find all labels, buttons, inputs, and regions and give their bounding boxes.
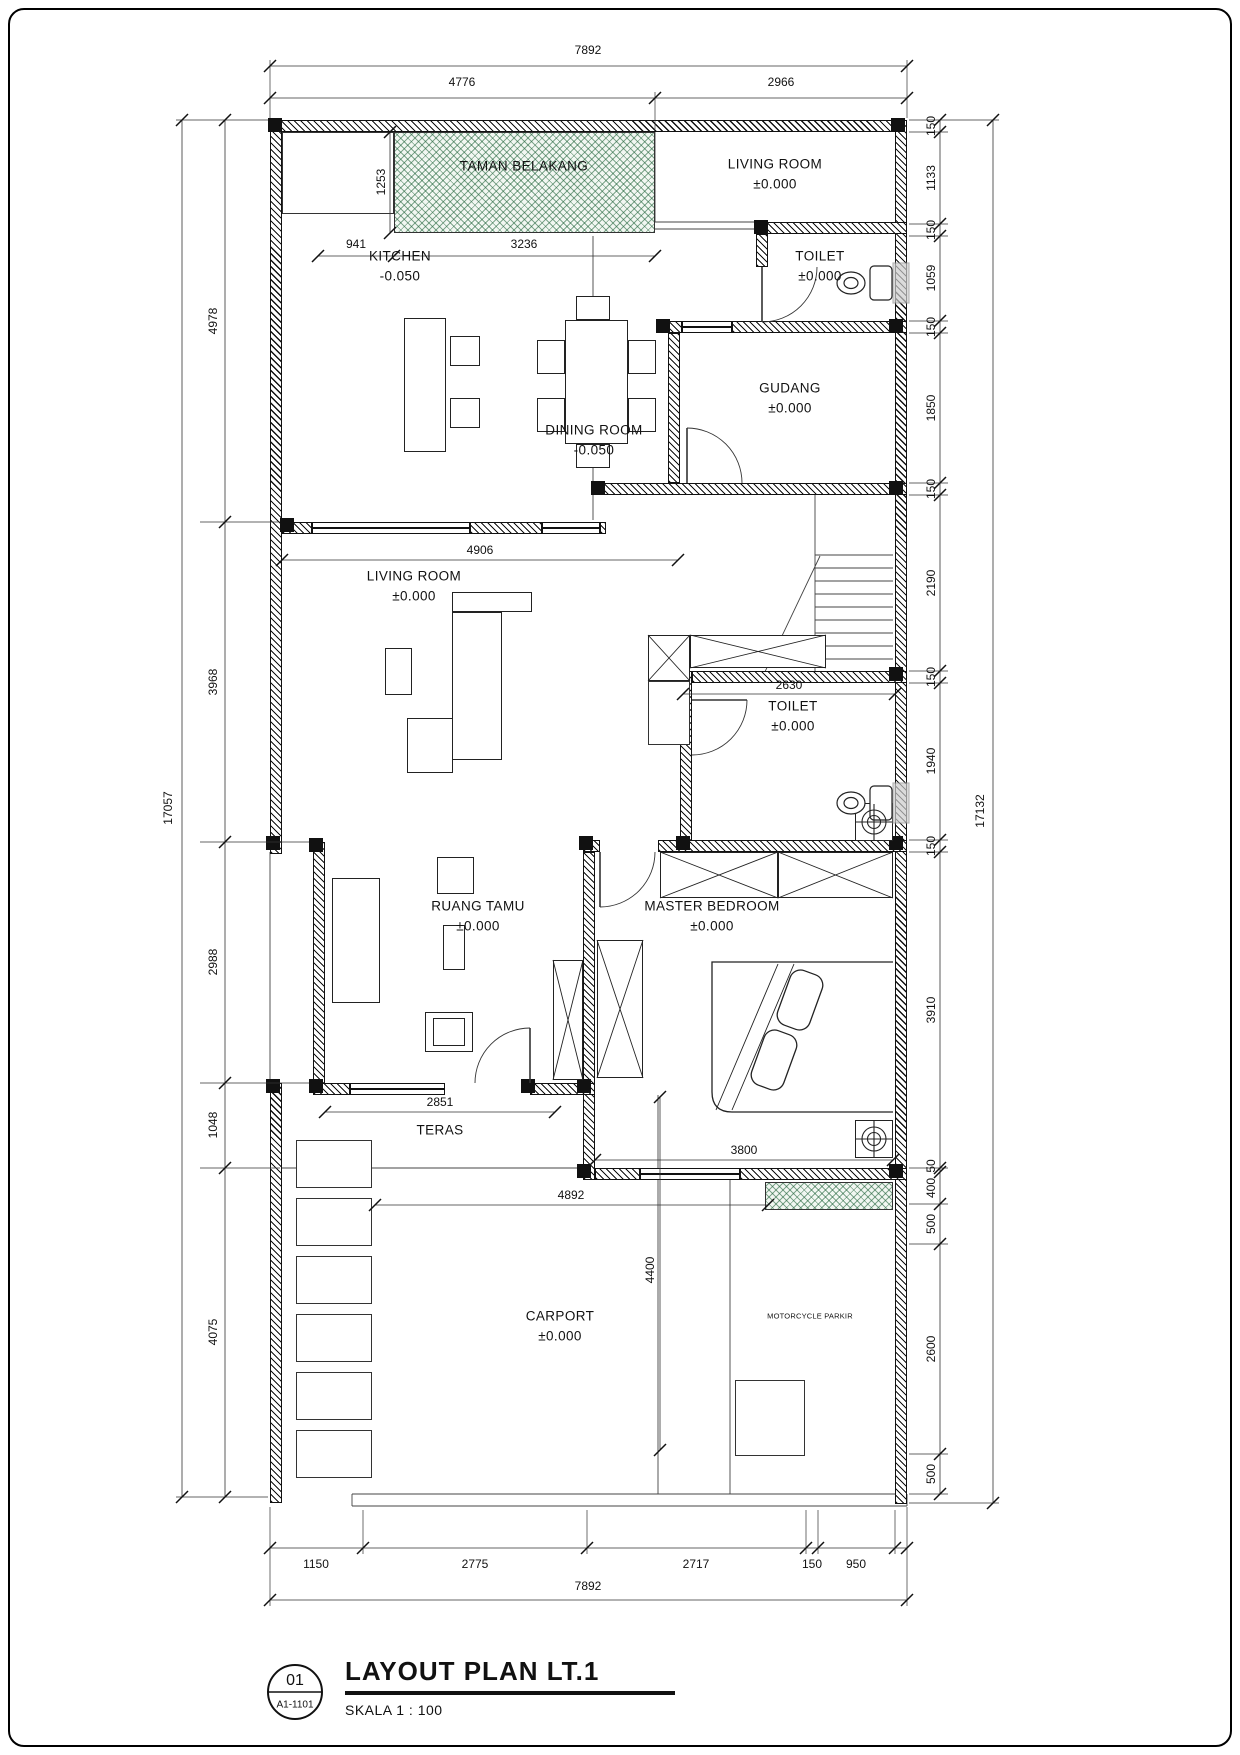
chair [628, 340, 656, 374]
dim-master-width: 3800 [731, 1143, 758, 1157]
column [521, 1079, 535, 1093]
dim-top-overall: 7892 [575, 43, 602, 57]
column [591, 481, 605, 495]
dim-taman-depth: 1253 [374, 169, 388, 196]
window [682, 321, 732, 333]
dim-right: 150 [924, 479, 938, 499]
column [889, 319, 903, 333]
column [889, 667, 903, 681]
room-label-gudang: GUDANG [759, 381, 821, 396]
room-label-motorcycle: MOTORCYCLE PARKIR [767, 1312, 853, 1321]
dim-right: 2190 [924, 570, 938, 597]
room-label-teras: TERAS [416, 1123, 463, 1138]
chair [576, 296, 610, 320]
room-level: -0.050 [380, 269, 421, 284]
dim-right: 150 [924, 116, 938, 136]
floor-drain-symbol [855, 803, 893, 841]
wall-livingtop-bottom [756, 222, 907, 234]
planter-box [296, 1140, 372, 1188]
dim-right-overall: 17132 [973, 794, 987, 827]
sofa [452, 592, 532, 612]
chair [537, 340, 565, 374]
wall-toilettop-left [756, 234, 768, 267]
floor-plan-sheet: TAMAN BELAKANG LIVING ROOM ±0.000 TOILET… [0, 0, 1240, 1755]
room-level: ±0.000 [690, 919, 734, 934]
dim-top-right: 2966 [768, 75, 795, 89]
dim-right: 150 [924, 317, 938, 337]
dim-left-overall: 17057 [161, 791, 175, 824]
column [577, 1164, 591, 1178]
wardrobe [660, 852, 778, 898]
cabinet [553, 960, 583, 1080]
planter-box [296, 1198, 372, 1246]
wall-master-bottom [595, 1168, 640, 1180]
dim-right: 150 [924, 667, 938, 687]
shaft-box [690, 635, 826, 668]
dim-teras-width: 2851 [427, 1095, 454, 1109]
planter-strip [765, 1182, 893, 1210]
floor-drain-symbol [855, 1120, 893, 1158]
dim-left: 4978 [206, 308, 220, 335]
column [577, 1079, 591, 1093]
dim-right: 50 [924, 1159, 938, 1172]
room-level: ±0.000 [771, 719, 815, 734]
planter-box [296, 1256, 372, 1304]
window [350, 1083, 445, 1095]
dim-bottom: 2775 [462, 1557, 489, 1571]
room-label-ruang-tamu: RUANG TAMU [431, 899, 525, 914]
dim-carport-depth: 4400 [643, 1257, 657, 1284]
dim-left: 1048 [206, 1112, 220, 1139]
dim-kitchen-left: 941 [346, 237, 366, 251]
wall-master-bottom [740, 1168, 907, 1180]
column [579, 836, 593, 850]
coffee-table [385, 648, 412, 695]
room-label-toilet-top: TOILET [795, 249, 844, 264]
room-level: ±0.000 [768, 401, 812, 416]
chair [450, 398, 480, 428]
room-label-toilet-mid: TOILET [768, 699, 817, 714]
column [889, 481, 903, 495]
wall-toilettop-bottom [732, 321, 907, 333]
room-label-master-bedroom: MASTER BEDROOM [644, 899, 779, 914]
room-level: ±0.000 [538, 1329, 582, 1344]
sheet-border [8, 8, 1232, 1747]
dim-right: 1133 [924, 165, 938, 191]
room-label-taman-belakang: TAMAN BELAKANG [460, 159, 588, 174]
garden-taman-belakang [394, 132, 655, 233]
dim-right: 500 [924, 1214, 938, 1234]
wall-exterior-left-lower [270, 1083, 282, 1503]
title-underline [345, 1691, 675, 1695]
dim-right: 150 [924, 836, 938, 856]
dim-bottom: 150 [802, 1557, 822, 1571]
planter-box [296, 1372, 372, 1420]
dim-left: 4075 [206, 1319, 220, 1346]
sofa [332, 878, 380, 1003]
column [889, 1164, 903, 1178]
kitchen-island [404, 318, 446, 452]
dim-right: 2600 [924, 1336, 938, 1363]
dim-right: 500 [924, 1464, 938, 1484]
chair [450, 336, 480, 366]
dim-right: 1940 [924, 748, 938, 775]
drawing-title: LAYOUT PLAN LT.1 [345, 1656, 599, 1687]
wall-exterior-top [270, 120, 907, 132]
column [676, 836, 690, 850]
column [656, 319, 670, 333]
room-label-carport: CARPORT [526, 1309, 595, 1324]
dim-toilet-width: 2630 [776, 678, 803, 692]
room-level: ±0.000 [798, 269, 842, 284]
wall-master-left [583, 852, 595, 1180]
drawing-scale: SKALA 1 : 100 [345, 1702, 443, 1718]
dim-top-left: 4776 [449, 75, 476, 89]
column [891, 118, 905, 132]
dim-right: 150 [924, 220, 938, 240]
dim-bottom: 2717 [683, 1557, 710, 1571]
window [640, 1168, 740, 1180]
planter-box [296, 1430, 372, 1478]
dim-bottom: 1150 [303, 1557, 329, 1571]
sofa [452, 612, 502, 760]
planter-box [296, 1314, 372, 1362]
sheet-code: A1-1101 [276, 1700, 313, 1711]
wall-kitchen-bottom [600, 522, 606, 534]
column [280, 518, 294, 532]
window [312, 522, 470, 534]
window [542, 522, 600, 534]
column [266, 1079, 280, 1093]
dim-carport-width: 4892 [558, 1188, 585, 1202]
shaft-box [648, 635, 690, 681]
armchair-cushion [433, 1018, 465, 1046]
gate-structure [735, 1380, 805, 1456]
room-label-kitchen: KITCHEN [369, 249, 431, 264]
dim-right: 400 [924, 1178, 938, 1198]
detail-number: 01 [286, 1672, 304, 1690]
dim-bottom-overall: 7892 [575, 1579, 602, 1593]
room-label-dining: DINING ROOM [545, 423, 642, 438]
dim-right: 1059 [924, 265, 938, 292]
wall-exterior-left [270, 120, 282, 854]
column [266, 836, 280, 850]
dim-left: 2988 [206, 949, 220, 976]
room-level: ±0.000 [456, 919, 500, 934]
column [268, 118, 282, 132]
wall-ruangtamu-left [313, 842, 325, 1095]
dim-bottom: 950 [846, 1557, 866, 1571]
dim-left: 3968 [206, 669, 220, 696]
wardrobe [597, 940, 643, 1078]
dim-living-width: 4906 [467, 543, 494, 557]
column [754, 220, 768, 234]
room-label-living-mid: LIVING ROOM [367, 569, 461, 584]
room-label-living-top: LIVING ROOM [728, 157, 822, 172]
side-table [437, 857, 474, 894]
wall-gudang-bottom [593, 483, 907, 495]
room-level: ±0.000 [753, 177, 797, 192]
wall-master-top [658, 840, 907, 852]
column [309, 1079, 323, 1093]
wall-gudang-left [668, 333, 680, 483]
room-level: ±0.000 [392, 589, 436, 604]
stair-landing [648, 681, 690, 745]
room-level: -0.050 [574, 443, 615, 458]
wardrobe [778, 852, 893, 898]
wall-kitchen-bottom [470, 522, 542, 534]
side-table [407, 718, 453, 773]
column [309, 838, 323, 852]
dim-right: 3910 [924, 997, 938, 1024]
dim-right: 1850 [924, 395, 938, 422]
dim-taman-width: 3236 [511, 237, 538, 251]
